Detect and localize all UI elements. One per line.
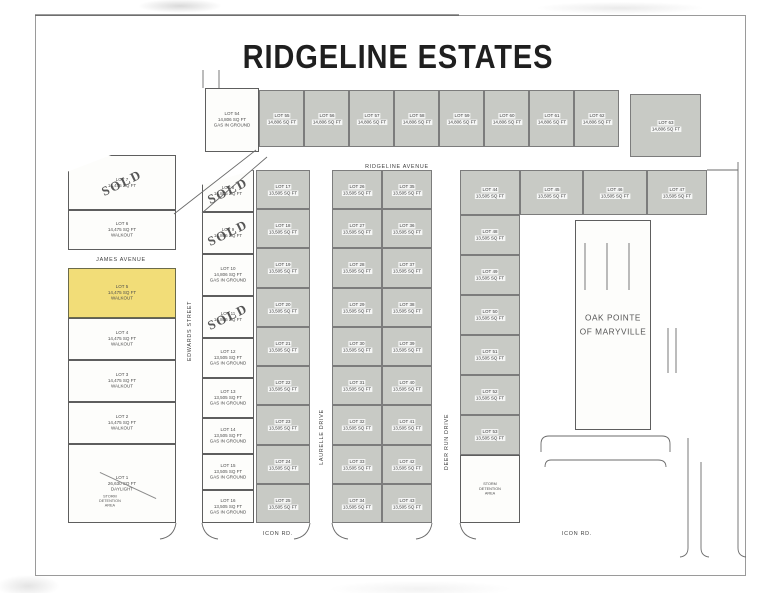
lot-label: LOT 4013,505 SQ FT [392,379,422,393]
lot-label: LOT 1213,505 SQ FTGAS IN GROUND [210,349,247,367]
lot-label: LOT 4813,505 SQ FT [475,228,505,242]
lot-label: LOT 2613,505 SQ FT [342,183,372,197]
lot-label: LOT 6114,806 SQ FT [536,112,566,126]
lot-label: LOT 3713,505 SQ FT [392,261,422,275]
lot-label: LOT 3013,505 SQ FT [342,340,372,354]
street-label-deer-run-drive: DEER RUN DRIVE [443,414,449,470]
lot-51: LOT 5113,505 SQ FT [460,335,520,375]
lot-label: LOT 5414,806 SQ FTGAS IN GROUND [214,111,251,129]
lot-9: LOT 914,806 SQ FTSOLD [202,212,254,254]
lot-20: LOT 2013,505 SQ FT [256,288,310,327]
lot-label: LOT 3613,505 SQ FT [392,222,422,236]
lot-45: LOT 4513,505 SQ FT [520,170,583,215]
lot-56: LOT 5614,806 SQ FT [304,90,349,147]
lot-40: LOT 4013,505 SQ FT [382,366,432,405]
lot-21: LOT 2113,505 SQ FT [256,327,310,366]
street-label-icon-rd-left: ICON RD. [263,530,293,536]
lot-46: LOT 4613,505 SQ FT [583,170,647,215]
lot-4: LOT 414,475 SQ FTWALKOUT [68,318,176,360]
lot-19: LOT 1913,505 SQ FT [256,248,310,288]
sold-stamp: SOLD [205,300,251,333]
lot-label: LOT 414,475 SQ FTWALKOUT [108,330,136,348]
lot-59: LOT 5914,806 SQ FT [439,90,484,147]
lot-2: LOT 214,475 SQ FTWALKOUT [68,402,176,444]
lot-label: LOT 4413,505 SQ FT [475,186,505,200]
lot-label: LOT 4613,505 SQ FT [600,186,630,200]
lot-label: LOT 514,475 SQ FTWALKOUT [108,284,136,302]
sold-stamp: SOLD [205,216,251,249]
lot-label: LOT 5514,806 SQ FT [266,112,296,126]
lot-43: LOT 4313,505 SQ FT [382,484,432,523]
lot-label: LOT 5313,505 SQ FT [475,428,505,442]
lot-label: LOT 2213,505 SQ FT [268,379,298,393]
storm-detention-note: STORMDETENTIONAREA [99,494,121,508]
lot-63: LOT 6314,806 SQ FT [630,94,701,157]
lot-44: LOT 4413,505 SQ FT [460,170,520,215]
street-label-icon-rd-right: ICON RD. [562,530,592,536]
lot-label: LOT 5013,505 SQ FT [475,308,505,322]
oak-pointe-area: OAK POINTEOF MARYVILLE [575,220,651,430]
lot-13: LOT 1313,505 SQ FTGAS IN GROUND [202,378,254,418]
lot-label: LOT 2913,505 SQ FT [342,301,372,315]
lot-label: LOT 4513,505 SQ FT [536,186,566,200]
lot-36: LOT 3613,505 SQ FT [382,209,432,248]
lot-label: LOT 3913,505 SQ FT [392,340,422,354]
lot-label: LOT 1913,505 SQ FT [268,261,298,275]
lot-31: LOT 3113,505 SQ FT [332,366,382,405]
lot-53: LOT 5313,505 SQ FT [460,415,520,455]
lot-label: LOT 5814,806 SQ FT [401,112,431,126]
lot-label: LOT 4313,505 SQ FT [392,497,422,511]
lot-label: LOT 5213,505 SQ FT [475,388,505,402]
lot-12: LOT 1213,505 SQ FTGAS IN GROUND [202,338,254,378]
lot-28: LOT 2813,505 SQ FT [332,248,382,288]
lot-label: STORMDETENTIONAREA [479,482,501,497]
lot-52: LOT 5213,505 SQ FT [460,375,520,415]
lot-label: LOT 6214,806 SQ FT [581,112,611,126]
lot-label: LOT 3113,505 SQ FT [342,379,372,393]
lot-33: LOT 3313,505 SQ FT [332,445,382,484]
lot-58: LOT 5814,806 SQ FT [394,90,439,147]
street-label-edwards-street: EDWARDS STREET [186,301,192,361]
lot-label: LOT 2813,505 SQ FT [342,261,372,275]
lot-15: LOT 1513,505 SQ FTGAS IN GROUND [202,454,254,490]
lot-label: LOT 1014,806 SQ FTGAS IN GROUND [210,266,247,284]
lot-label: LOT 1613,505 SQ FTGAS IN GROUND [210,498,247,516]
lot-3: LOT 314,475 SQ FTWALKOUT [68,360,176,402]
lot-label: LOT 1513,505 SQ FTGAS IN GROUND [210,463,247,481]
lot-24: LOT 2413,505 SQ FT [256,445,310,484]
lot-61: LOT 6114,806 SQ FT [529,90,574,147]
lot-48: LOT 4813,505 SQ FT [460,215,520,255]
lot-57: LOT 5714,806 SQ FT [349,90,394,147]
lot-label: LOT 5113,505 SQ FT [475,348,505,362]
lot-label: LOT 5614,806 SQ FT [311,112,341,126]
lot-54: LOT 5414,806 SQ FTGAS IN GROUND [205,88,259,152]
lot-60: LOT 6014,806 SQ FT [484,90,529,147]
lot-label: LOT 2113,505 SQ FT [268,340,298,354]
street-label-ridgeline-avenue: RIDGELINE AVENUE [365,163,429,169]
lot-label: LOT 4913,505 SQ FT [475,268,505,282]
lot-label: LOT 6014,806 SQ FT [491,112,521,126]
lot-label: LOT 4213,505 SQ FT [392,458,422,472]
lot-label: LOT 2413,505 SQ FT [268,458,298,472]
lot-label: LOT 4113,505 SQ FT [392,418,422,432]
lot-label: LOT 1813,505 SQ FT [268,222,298,236]
lot-label: LOT 1713,505 SQ FT [268,183,298,197]
lot-label: LOT 614,475 SQ FTWALKOUT [108,221,136,239]
storm-detention-area-right: STORMDETENTIONAREA [460,455,520,523]
lot-42: LOT 4213,505 SQ FT [382,445,432,484]
lot-26: LOT 2613,505 SQ FT [332,170,382,209]
lot-label: LOT 4713,505 SQ FT [662,186,692,200]
lot-11: LOT 1114,806 SQ FTSOLD [202,296,254,338]
lot-55: LOT 5514,806 SQ FT [259,90,304,147]
lot-16: LOT 1613,505 SQ FTGAS IN GROUND [202,490,254,523]
lot-label: LOT 214,475 SQ FTWALKOUT [108,414,136,432]
lot-label: LOT 2713,505 SQ FT [342,222,372,236]
lot-label: LOT 5914,806 SQ FT [446,112,476,126]
lot-14: LOT 1413,505 SQ FTGAS IN GROUND [202,418,254,454]
plat-map: RIDGELINE ESTATES LOT 5414,806 SQ FTGAS … [0,0,781,593]
lot-label: LOT 3813,505 SQ FT [392,301,422,315]
lot-1: LOT 126,630 SQ FTDAYLIGHTSTORMDETENTIONA… [68,444,176,523]
lot-10: LOT 1014,806 SQ FTGAS IN GROUND [202,254,254,296]
lot-label: LOT 3413,505 SQ FT [342,497,372,511]
scan-artifact [35,14,459,16]
lot-37: LOT 3713,505 SQ FT [382,248,432,288]
lot-27: LOT 2713,505 SQ FT [332,209,382,248]
lot-50: LOT 5013,505 SQ FT [460,295,520,335]
street-label-james-avenue: JAMES AVENUE [96,256,146,262]
lot-30: LOT 3013,505 SQ FT [332,327,382,366]
lot-label: LOT 314,475 SQ FTWALKOUT [108,372,136,390]
lot-label: LOT 3513,505 SQ FT [392,183,422,197]
lot-25: LOT 2513,505 SQ FT [256,484,310,523]
lot-label: LOT 2013,505 SQ FT [268,301,298,315]
lot-label: LOT 5714,806 SQ FT [356,112,386,126]
lot-22: LOT 2213,505 SQ FT [256,366,310,405]
lot-label: LOT 1313,505 SQ FTGAS IN GROUND [210,389,247,407]
lot-label: LOT 1413,505 SQ FTGAS IN GROUND [210,427,247,445]
lot-39: LOT 3913,505 SQ FT [382,327,432,366]
lot-label: OAK POINTEOF MARYVILLE [580,311,647,339]
street-label-laurelle-drive: LAURELLE DRIVE [318,409,324,465]
lot-label: LOT 3313,505 SQ FT [342,458,372,472]
lot-49: LOT 4913,505 SQ FT [460,255,520,295]
lot-label: LOT 3213,505 SQ FT [342,418,372,432]
lot-32: LOT 3213,505 SQ FT [332,405,382,445]
lot-5: LOT 514,475 SQ FTWALKOUT [68,268,176,318]
lot-18: LOT 1813,505 SQ FT [256,209,310,248]
lot-label: LOT 2313,505 SQ FT [268,418,298,432]
lot-47: LOT 4713,505 SQ FT [647,170,707,215]
lot-17: LOT 1713,505 SQ FT [256,170,310,209]
lot-label: LOT 2513,505 SQ FT [268,497,298,511]
page-title: RIDGELINE ESTATES [243,38,554,76]
lot-29: LOT 2913,505 SQ FT [332,288,382,327]
lot-23: LOT 2313,505 SQ FT [256,405,310,445]
lot-34: LOT 3413,505 SQ FT [332,484,382,523]
lot-35: LOT 3513,505 SQ FT [382,170,432,209]
lot-41: LOT 4113,505 SQ FT [382,405,432,445]
lot-38: LOT 3813,505 SQ FT [382,288,432,327]
lot-label: LOT 6314,806 SQ FT [650,119,680,133]
sold-stamp: SOLD [99,166,145,199]
lot-62: LOT 6214,806 SQ FT [574,90,619,147]
lot-6: LOT 614,475 SQ FTWALKOUT [68,210,176,250]
